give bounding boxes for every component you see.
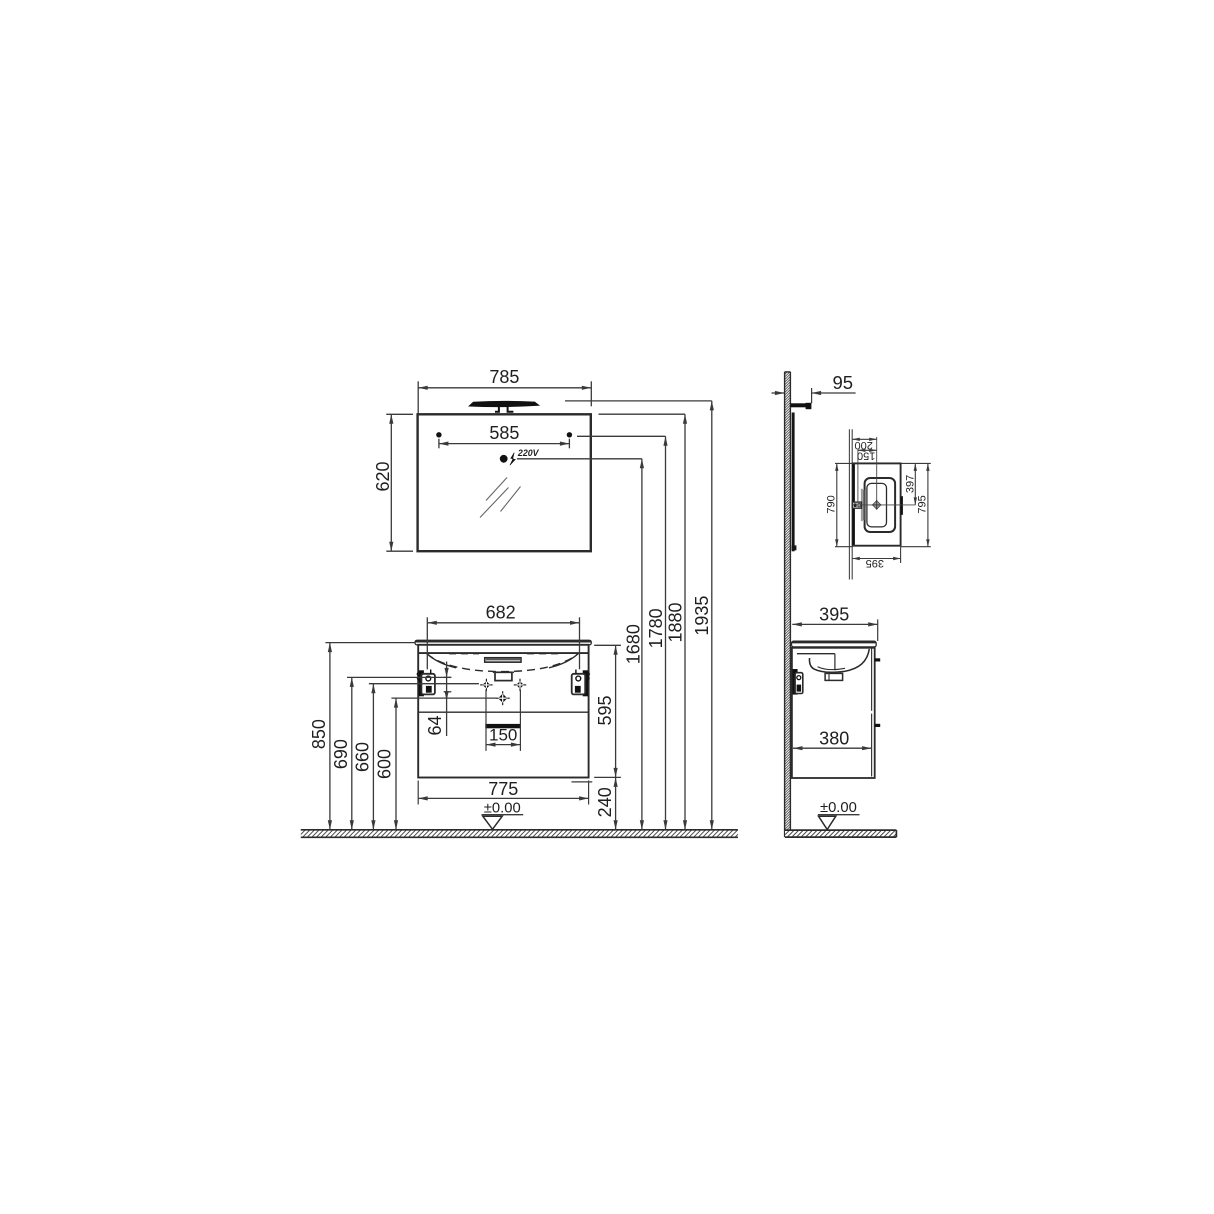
svg-text:397: 397	[904, 475, 916, 493]
svg-text:785: 785	[489, 367, 519, 387]
svg-text:150: 150	[857, 449, 875, 461]
svg-text:775: 775	[488, 779, 518, 799]
svg-text:220V: 220V	[517, 448, 540, 458]
svg-text:395: 395	[819, 605, 849, 625]
svg-text:660: 660	[353, 742, 373, 772]
svg-text:1680: 1680	[623, 624, 643, 664]
svg-text:790: 790	[826, 495, 838, 513]
svg-text:395: 395	[866, 557, 884, 569]
svg-text:600: 600	[374, 749, 394, 779]
svg-text:1935: 1935	[692, 596, 712, 636]
svg-text:850: 850	[309, 719, 329, 749]
svg-text:380: 380	[819, 728, 849, 748]
svg-text:795: 795	[917, 495, 929, 513]
svg-text:95: 95	[833, 372, 854, 393]
svg-text:240: 240	[595, 787, 615, 817]
svg-text:595: 595	[595, 695, 615, 725]
svg-text:1880: 1880	[665, 602, 685, 642]
svg-text:1780: 1780	[646, 608, 666, 648]
svg-text:150: 150	[489, 726, 517, 745]
svg-text:±0.00: ±0.00	[820, 800, 857, 816]
svg-text:690: 690	[331, 739, 351, 769]
svg-text:64: 64	[425, 715, 445, 735]
svg-text:620: 620	[373, 461, 393, 491]
svg-text:585: 585	[489, 423, 519, 443]
svg-text:682: 682	[486, 602, 516, 622]
